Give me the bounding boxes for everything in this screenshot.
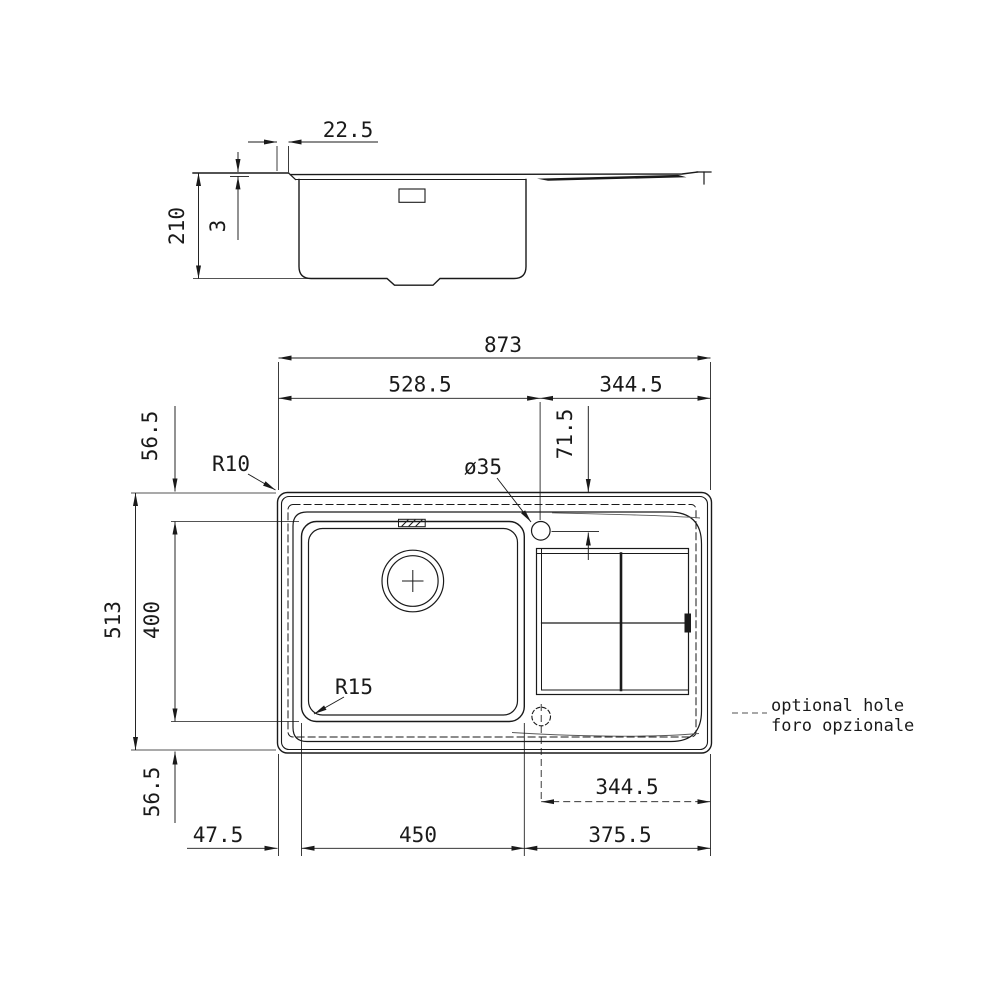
dim-bottom-margin-label: 56.5: [140, 767, 164, 818]
dim-overall-depth-label: 513: [101, 601, 125, 639]
side-view: 22.5 210 3: [165, 118, 711, 285]
drain: [382, 550, 444, 612]
outer-corner-radius-leader: [248, 474, 276, 490]
cutout-dashed-outline: [288, 505, 696, 738]
drainboard-contour-bottom: [512, 733, 699, 737]
plan-view: 873 528.5 344.5 71.5 ø35 R10 R15 513 400…: [101, 333, 712, 856]
dim-overall-width-label: 873: [484, 333, 522, 357]
grid-outer: [537, 549, 689, 695]
legend-optional-hole-it: foro opzionale: [771, 716, 914, 736]
dim-overall-height-label: 210: [165, 207, 189, 245]
deck-inner-edge: [293, 512, 702, 742]
outer-corner-radius-label: R10: [212, 452, 250, 476]
tap-hole-diameter-label: ø35: [464, 455, 502, 479]
legend-optional-hole-en: optional hole: [771, 696, 904, 716]
side-deck-top-line: [291, 172, 698, 175]
bowl-corner-radius-leader: [314, 697, 344, 714]
overflow-slot: [399, 519, 426, 526]
grid-drain-slot: [685, 614, 692, 633]
dim-tap-to-right-label: 344.5: [599, 373, 662, 397]
side-bowl-profile: [299, 180, 526, 286]
dim-left-to-tap-label: 528.5: [388, 373, 451, 397]
dim-top-margin-label: 56.5: [138, 411, 162, 462]
drainboard-grid: [537, 549, 692, 695]
dim-tap-offset-label: 71.5: [553, 409, 577, 460]
tap-hole-leader: [497, 478, 531, 522]
side-drainboard-wedge: [537, 175, 687, 181]
dim-bowl-depth-label: 400: [140, 601, 164, 639]
dim-optional-hole-offset-label: 344.5: [595, 775, 658, 799]
tap-hole-circle: [532, 522, 551, 541]
sink-technical-drawing: 22.5 210 3: [0, 0, 1000, 1000]
dim-rim-width-label: 22.5: [323, 118, 374, 142]
drawing-sheet: 22.5 210 3: [0, 0, 1000, 1000]
bowl-corner-radius-label: R15: [335, 675, 373, 699]
dim-right-margin-label: 375.5: [588, 823, 651, 847]
legend: optional hole foro opzionale: [732, 696, 914, 736]
side-overflow: [399, 189, 425, 202]
drainboard-contour-top: [552, 513, 700, 518]
dim-left-margin-label: 47.5: [193, 823, 244, 847]
dim-rim-thickness-label: 3: [206, 220, 230, 233]
dim-bowl-width-label: 450: [399, 823, 437, 847]
